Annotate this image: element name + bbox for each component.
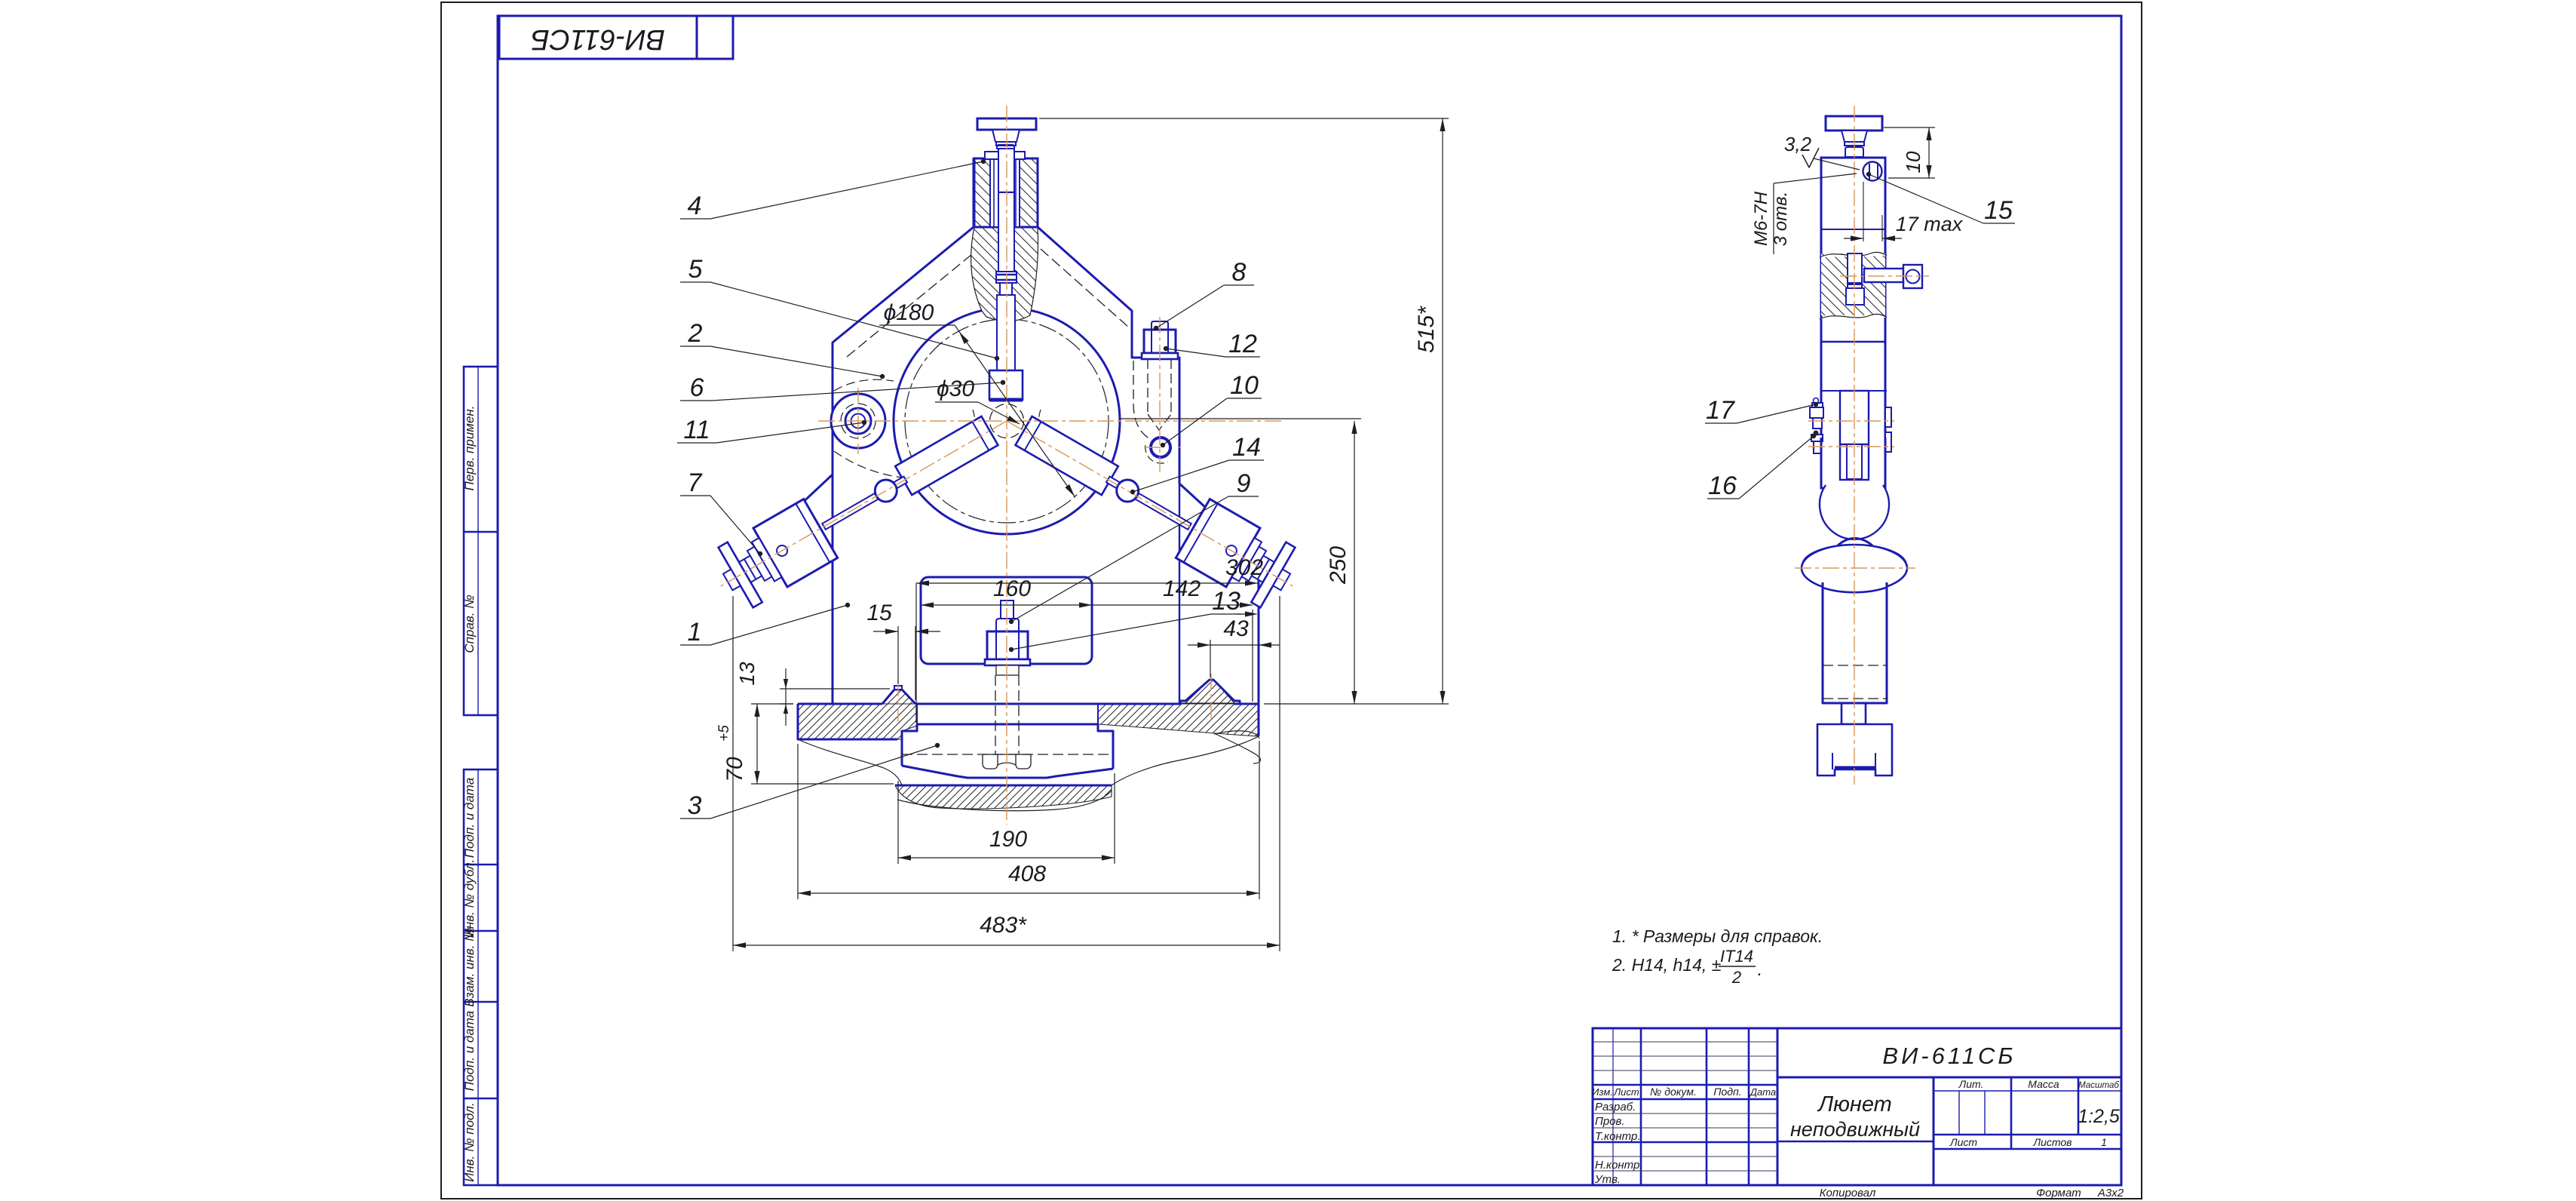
- svg-text:ϕ180: ϕ180: [884, 300, 934, 325]
- svg-text:Лист: Лист: [1613, 1086, 1639, 1098]
- svg-text:190: 190: [989, 827, 1027, 852]
- svg-text:Масштаб: Масштаб: [2078, 1081, 2119, 1090]
- svg-text:Лист: Лист: [1949, 1136, 1977, 1148]
- svg-text:8: 8: [1232, 258, 1247, 287]
- svg-text:ВИ-611СБ: ВИ-611СБ: [1882, 1043, 2016, 1069]
- svg-text:3,2: 3,2: [1784, 133, 1812, 155]
- svg-text:3: 3: [688, 791, 702, 820]
- svg-text:№ докум.: № докум.: [1650, 1086, 1697, 1098]
- svg-text:.: .: [1758, 960, 1763, 980]
- svg-text:302: 302: [1225, 555, 1263, 580]
- svg-text:Люнет: Люнет: [1817, 1092, 1892, 1117]
- svg-text:2: 2: [1731, 968, 1741, 987]
- svg-text:Подп.: Подп.: [1713, 1086, 1741, 1098]
- svg-text:5: 5: [688, 255, 703, 284]
- svg-text:2: 2: [688, 319, 703, 348]
- svg-text:11: 11: [683, 416, 710, 444]
- svg-text:А3х2: А3х2: [2097, 1187, 2124, 1199]
- svg-text:515*: 515*: [1414, 306, 1439, 353]
- svg-text:43: 43: [1223, 616, 1249, 641]
- svg-text:14: 14: [1232, 433, 1261, 462]
- svg-text:+5: +5: [716, 725, 732, 742]
- svg-text:7: 7: [688, 468, 703, 497]
- svg-text:13: 13: [735, 662, 759, 686]
- svg-text:ϕ30: ϕ30: [937, 376, 974, 401]
- svg-text:70: 70: [722, 757, 747, 782]
- svg-text:Т.контр.: Т.контр.: [1595, 1130, 1641, 1143]
- svg-text:Листов: Листов: [2033, 1136, 2072, 1148]
- svg-text:2. Н14, h14, ±: 2. Н14, h14, ±: [1612, 955, 1721, 975]
- svg-text:Изм.: Изм.: [1592, 1086, 1613, 1098]
- svg-text:Формат: Формат: [2036, 1187, 2081, 1199]
- svg-text:неподвижный: неподвижный: [1790, 1118, 1920, 1141]
- svg-text:Подп. и дата: Подп. и дата: [462, 778, 477, 858]
- svg-text:Перв. примен.: Перв. примен.: [462, 406, 477, 491]
- svg-text:Н.контр.: Н.контр.: [1595, 1159, 1643, 1172]
- svg-text:4: 4: [688, 192, 702, 220]
- svg-text:142: 142: [1163, 576, 1201, 601]
- svg-text:10: 10: [1230, 371, 1259, 400]
- svg-text:408: 408: [1008, 862, 1046, 886]
- svg-text:Утв.: Утв.: [1594, 1173, 1621, 1186]
- svg-text:1: 1: [688, 618, 702, 647]
- svg-text:6: 6: [690, 373, 704, 402]
- svg-text:160: 160: [993, 576, 1031, 601]
- svg-text:Подп. и дата: Подп. и дата: [462, 1011, 477, 1091]
- svg-text:Взам. инв. №: Взам. инв. №: [462, 927, 477, 1006]
- svg-text:250: 250: [1326, 546, 1351, 585]
- svg-text:ВИ-611СБ: ВИ-611СБ: [531, 23, 665, 55]
- svg-text:Дата: Дата: [1749, 1086, 1776, 1098]
- svg-text:Копировал: Копировал: [1820, 1187, 1876, 1199]
- svg-text:Инв. № дубл.: Инв. № дубл.: [462, 859, 477, 938]
- svg-text:17: 17: [1706, 396, 1735, 425]
- svg-text:13: 13: [1212, 587, 1240, 616]
- svg-text:1. * Размеры для справок.: 1. * Размеры для справок.: [1612, 926, 1823, 946]
- svg-text:Инв. № подл.: Инв. № подл.: [462, 1102, 477, 1182]
- svg-text:Разраб.: Разраб.: [1595, 1101, 1636, 1113]
- svg-text:1:2,5: 1:2,5: [2078, 1106, 2120, 1127]
- svg-text:16: 16: [1708, 471, 1737, 500]
- svg-text:IT14: IT14: [1720, 947, 1753, 966]
- svg-text:17 max: 17 max: [1896, 213, 1964, 235]
- svg-text:1: 1: [2101, 1136, 2107, 1148]
- svg-text:Масса: Масса: [2028, 1078, 2059, 1090]
- svg-text:15: 15: [1984, 196, 2013, 225]
- svg-text:Лит.: Лит.: [1958, 1078, 1984, 1090]
- svg-text:15: 15: [866, 600, 892, 625]
- svg-text:М6-7Н: М6-7Н: [1751, 191, 1771, 246]
- svg-text:10: 10: [1902, 151, 1924, 173]
- svg-text:9: 9: [1237, 469, 1251, 498]
- svg-text:483*: 483*: [980, 913, 1027, 938]
- svg-text:Справ. №: Справ. №: [462, 594, 477, 653]
- svg-text:Пров.: Пров.: [1595, 1115, 1625, 1128]
- svg-text:12: 12: [1228, 330, 1257, 358]
